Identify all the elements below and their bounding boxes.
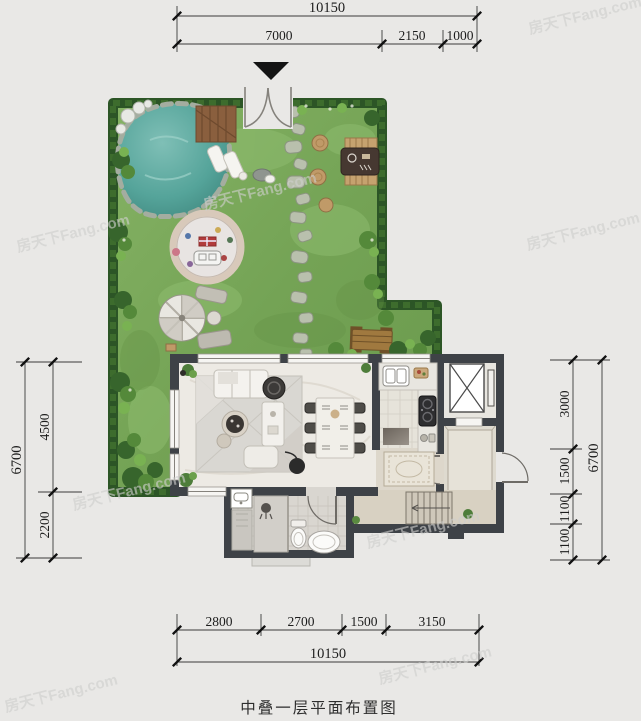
dim-bottom-1: 2800 [206, 614, 233, 629]
dim-left-2: 2200 [37, 511, 52, 538]
elevator-door [456, 418, 482, 426]
watermark-text: 房天下Fang.com [527, 0, 641, 38]
foyer-rug [384, 452, 434, 486]
dim-bottom-total: 10150 [310, 646, 346, 662]
watermark-text: 房天下Fang.com [525, 208, 641, 253]
dim-top-2: 2150 [399, 28, 426, 43]
lounge-chair-round [263, 377, 285, 399]
umbrella-icon [159, 295, 205, 341]
washbasin [231, 489, 252, 508]
dim-bottom-4: 3150 [419, 614, 446, 629]
window-living-top [198, 354, 280, 363]
entry-arrow-icon [253, 62, 289, 80]
toilet [291, 520, 306, 548]
window-dining-top [288, 354, 368, 363]
bathtub [308, 531, 340, 553]
play-mat [172, 213, 241, 281]
floor-plan-page: 10150 7000 2150 1000 2800 2700 1500 3150… [0, 0, 641, 721]
watermark-text: 房天下Fang.com [3, 670, 120, 715]
dim-bottom-2: 2700 [288, 614, 315, 629]
lobby-exterior-door [496, 452, 528, 482]
centerpiece [331, 410, 340, 419]
garden-bench [350, 326, 393, 353]
shower [254, 496, 288, 552]
dim-right-4: 1100 [557, 529, 572, 556]
dim-right-1: 3000 [557, 390, 572, 417]
dining-table [316, 398, 354, 458]
plan-caption: 中叠一层平面布置图 [240, 699, 398, 717]
side-cabinet [262, 402, 284, 446]
stove [419, 396, 436, 426]
sofa [214, 370, 268, 398]
kitchen-mat [383, 428, 409, 445]
dim-bottom-3: 1500 [351, 614, 378, 629]
floor-plan-canvas: 10150 7000 2150 1000 2800 2700 1500 3150… [0, 0, 641, 721]
dim-left-total: 6700 [9, 446, 25, 475]
dim-right-2: 1500 [557, 457, 572, 484]
dim-top-3: 1000 [447, 28, 474, 43]
dim-right-3: 1100 [557, 496, 572, 523]
dim-right-total: 6700 [586, 444, 602, 473]
entry [243, 62, 293, 129]
cutting-board [414, 368, 428, 378]
dim-top-total: 10150 [309, 0, 345, 16]
ottoman [244, 446, 278, 468]
bbq-set [341, 138, 379, 185]
window-living-left-1 [170, 390, 179, 448]
dim-left-1: 4500 [37, 413, 52, 440]
kitchen-sink [383, 366, 409, 386]
dining-area [305, 398, 365, 458]
window-living-bottom [188, 487, 226, 496]
dim-top-1: 7000 [266, 28, 293, 43]
window-kitchen-top [382, 354, 430, 363]
garden-deck [196, 106, 236, 142]
